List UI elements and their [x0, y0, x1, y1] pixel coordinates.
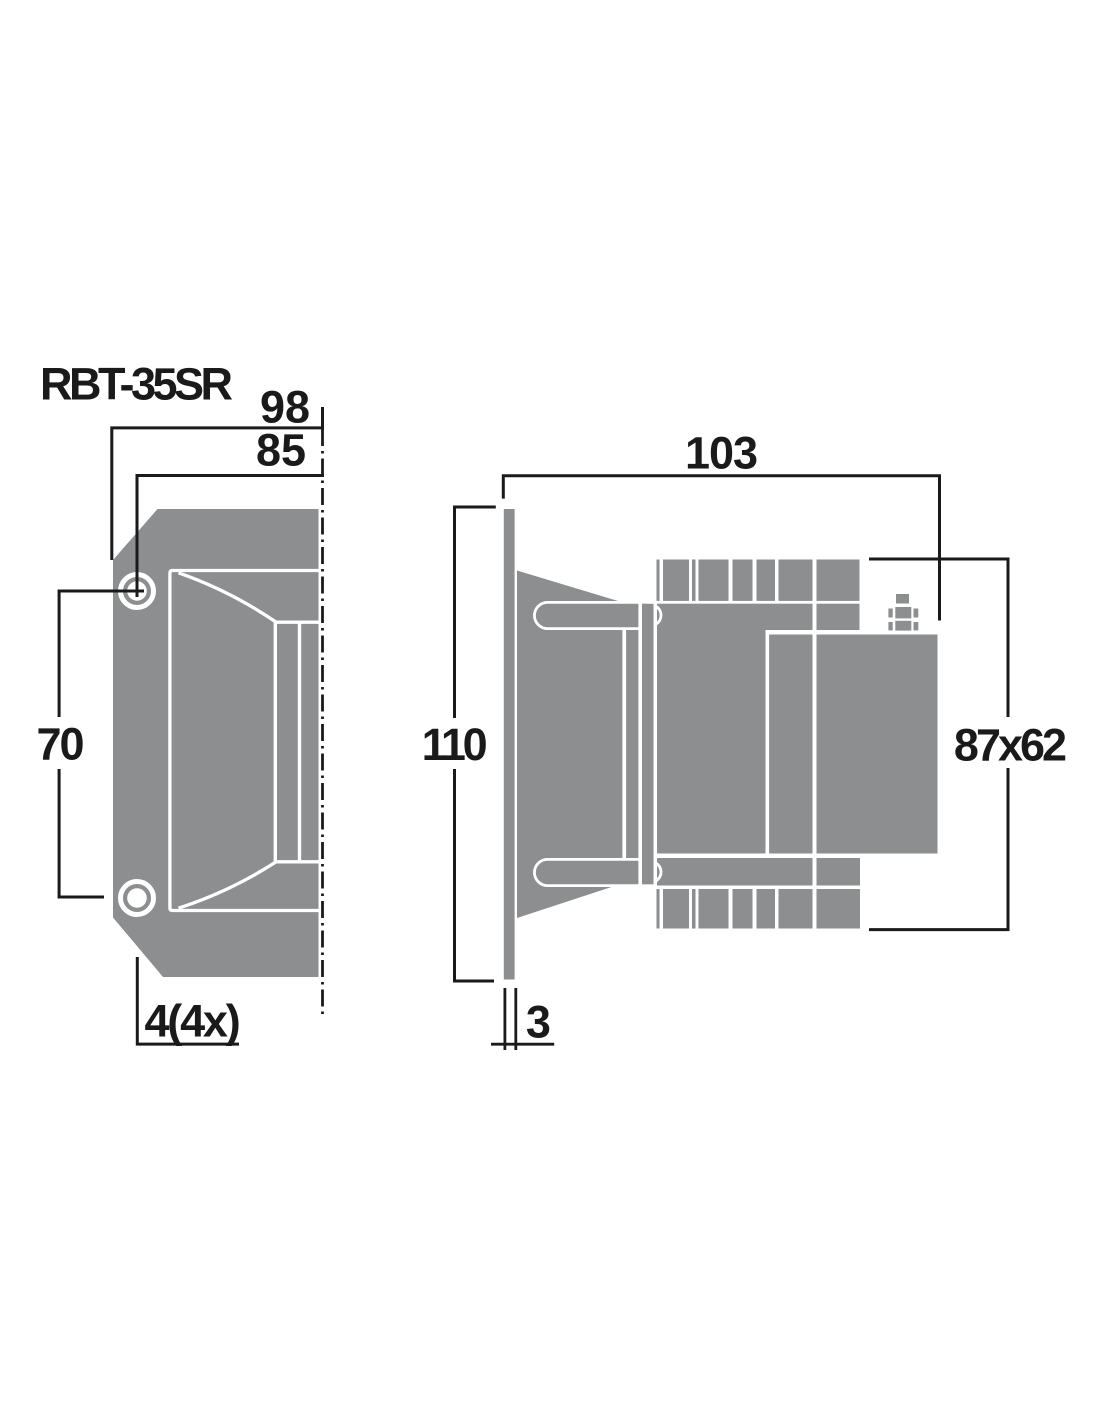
svg-text:3: 3	[526, 997, 551, 1048]
svg-text:103: 103	[685, 428, 757, 479]
svg-text:85: 85	[256, 425, 306, 476]
svg-text:87x62: 87x62	[954, 720, 1066, 771]
svg-text:70: 70	[36, 719, 83, 770]
svg-text:110: 110	[422, 719, 487, 770]
svg-text:4(4x): 4(4x)	[144, 996, 238, 1047]
svg-text:RBT-35SR: RBT-35SR	[40, 359, 233, 410]
